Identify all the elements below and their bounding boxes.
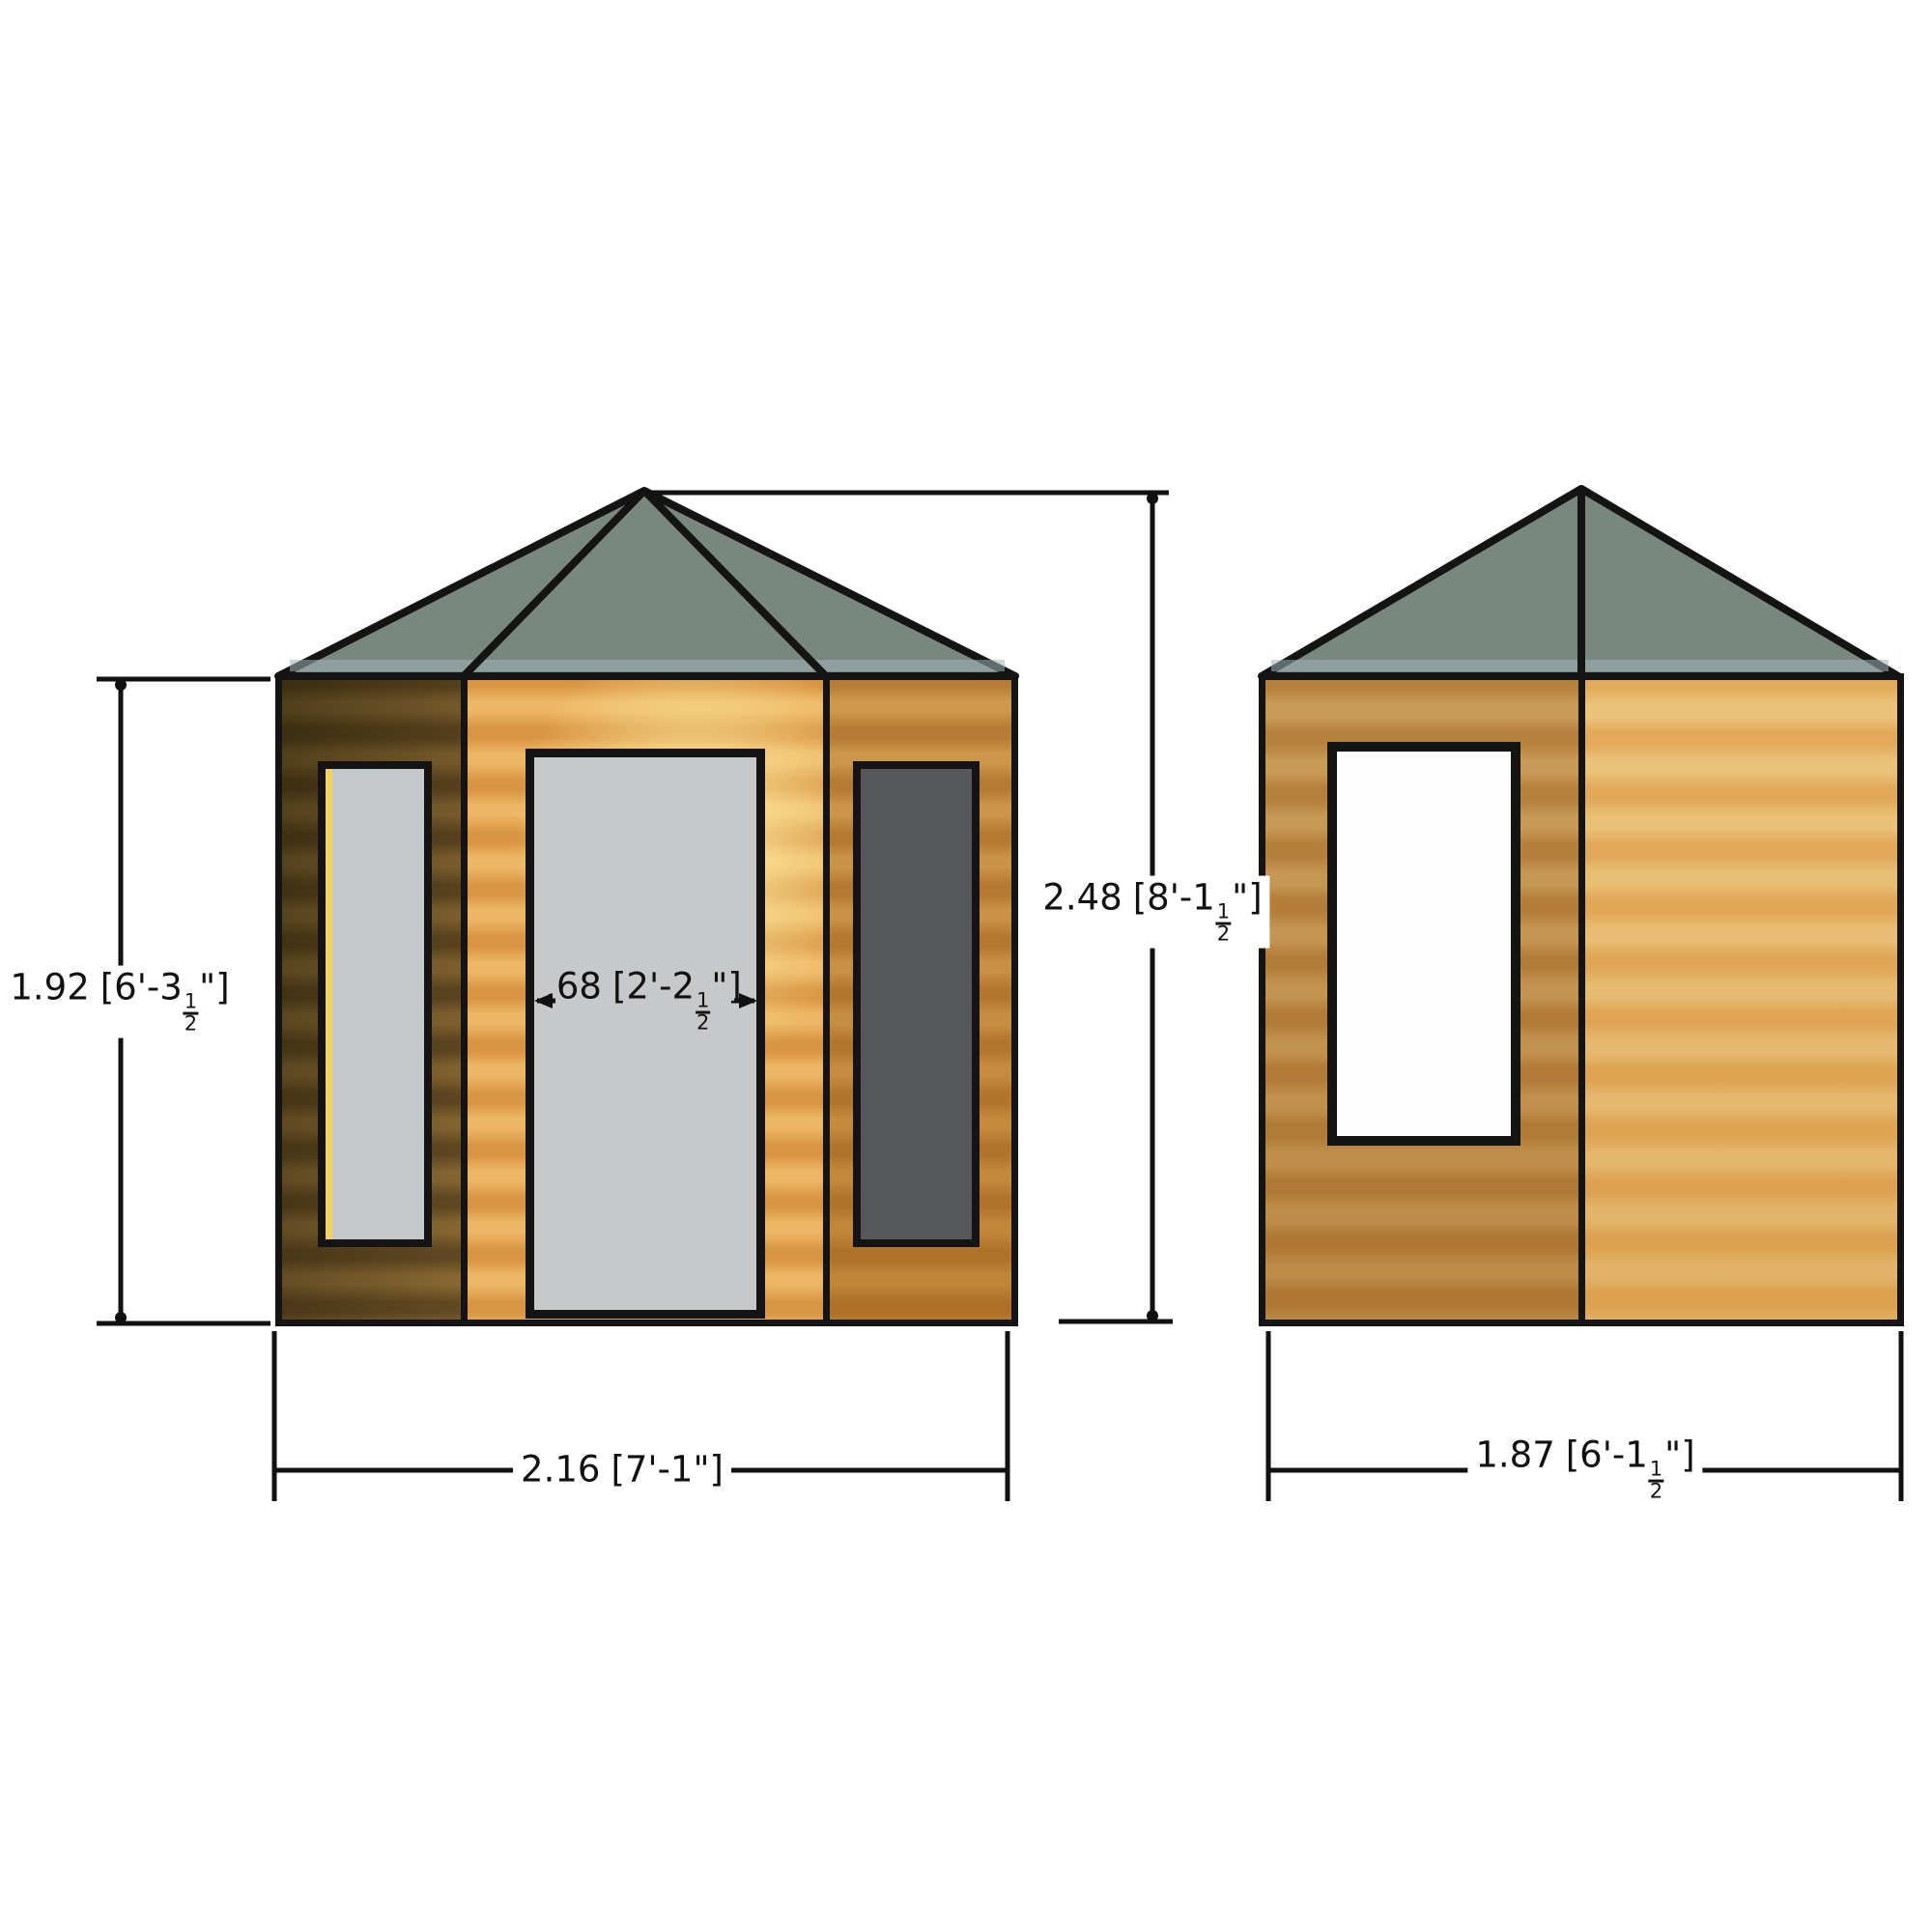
dim-fraction: 12 [1649, 1461, 1663, 1502]
dim-label-eaves-height: 1.92[6'-312"] [2, 966, 237, 1038]
dimension-endpoint-dot [115, 679, 127, 691]
dim-fraction: 12 [184, 993, 198, 1035]
dimension-endpoint-dot [1147, 493, 1158, 504]
dim-imperial-suffix: "] [693, 1449, 723, 1491]
dim-imperial-value: [6'-3 [100, 967, 183, 1009]
dim-imperial-value: [2'-2 [612, 966, 695, 1008]
front-roof [278, 491, 1015, 676]
side-roof [1262, 489, 1898, 676]
dim-label-side-width: 1.87[6'-112"] [1467, 1434, 1702, 1506]
dim-metric-value: 2.16 [521, 1449, 600, 1491]
dim-metric-value: 1.92 [10, 967, 89, 1009]
dim-fraction: 12 [696, 992, 710, 1034]
dim-label-front-width: 2.16[7'-1"] [513, 1448, 731, 1492]
dim-metric-value: 1.87 [1475, 1435, 1554, 1476]
dimension-endpoint-dot [115, 1312, 127, 1323]
dimension-endpoint-dot [1147, 1310, 1158, 1321]
dim-label-overall-height: 2.48[8'-112"] [1035, 876, 1269, 949]
drawing-canvas: 1.92[6'-312"] 2.48[8'-112"] .68[2'-212"]… [0, 0, 1932, 1932]
dim-imperial-suffix: "] [199, 967, 229, 1009]
dim-imperial-suffix: "] [711, 966, 741, 1008]
dim-metric-value: 2.48 [1042, 877, 1122, 919]
dim-metric-value: .68 [545, 966, 602, 1008]
dim-label-door-width: .68[2'-212"] [545, 969, 742, 1034]
dim-imperial-value: [7'-1 [611, 1449, 693, 1491]
dim-imperial-value: [6'-1 [1566, 1435, 1648, 1476]
dim-fraction: 12 [1216, 903, 1231, 945]
dim-imperial-value: [8'-1 [1133, 877, 1215, 919]
side-wall-outline [1259, 673, 1904, 1326]
dim-imperial-suffix: "] [1664, 1435, 1694, 1476]
front-roof-facet-line-left [464, 491, 644, 676]
dim-imperial-suffix: "] [1232, 877, 1262, 919]
front-roof-facet-line-right [644, 491, 826, 676]
